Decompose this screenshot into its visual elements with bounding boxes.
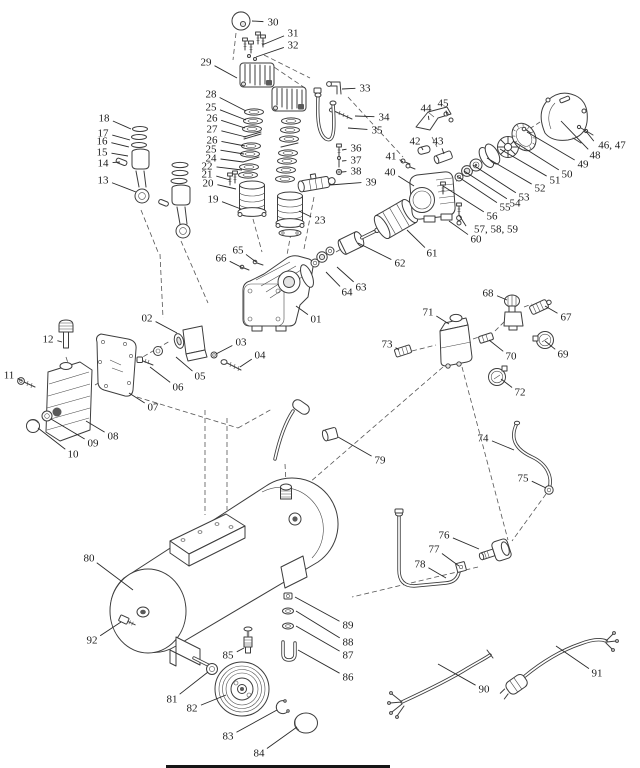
fitting-bolt-set (336, 144, 341, 175)
cylinder-head-front (240, 63, 274, 87)
leader-line (358, 243, 391, 260)
stator (410, 172, 456, 222)
part-number-label: 63 (356, 282, 368, 294)
leader-line (230, 261, 243, 268)
part-number-label: 19 (208, 194, 220, 206)
part-number-label: 41 (386, 151, 397, 163)
discharge-elbow (327, 82, 341, 94)
discharge-tube (314, 88, 336, 140)
part-number-label: 31 (288, 28, 299, 40)
leader-line (156, 322, 177, 333)
part-number-label: 75 (518, 473, 530, 485)
leader-line (217, 167, 242, 170)
part-number-label: 72 (515, 387, 526, 399)
hub-cap (295, 713, 318, 733)
part-number-label: 03 (236, 337, 248, 349)
leader-line (473, 165, 516, 193)
check-valve-manifold (297, 171, 337, 193)
part-number-label: 18 (99, 113, 111, 125)
part-number-label: 87 (343, 650, 355, 662)
leader-line (355, 116, 374, 117)
leader-line (299, 211, 311, 217)
leader-line (237, 648, 244, 652)
part-number-label: 68 (483, 288, 495, 300)
part-number-label: 32 (288, 40, 299, 52)
leader-line (220, 150, 244, 154)
leader-line (112, 183, 136, 192)
part-number-label: 04 (255, 350, 267, 362)
part-number-label: 70 (506, 351, 518, 363)
part-number-label: 40 (385, 167, 397, 179)
power-cord-bare (388, 650, 493, 718)
part-number-label: 29 (201, 57, 213, 69)
part-number-label: 56 (487, 211, 499, 223)
leader-line (585, 130, 594, 141)
part-number-label: 28 (206, 89, 218, 101)
piston-rear-assembly (158, 162, 190, 238)
crankcase (243, 256, 316, 331)
part-number-label: 05 (195, 371, 207, 383)
plug-fitting (529, 297, 553, 315)
leader-line (113, 162, 120, 163)
drain-valve-stem (244, 627, 252, 653)
leader-line (407, 230, 425, 248)
leader-line (111, 143, 129, 147)
leader-line (112, 135, 130, 140)
part-number-label: 20 (203, 178, 215, 190)
part-number-label: 89 (343, 620, 355, 632)
valve-plate-stack-rear (276, 118, 301, 182)
leader-line (113, 121, 131, 129)
bearing-bracket (173, 326, 207, 361)
part-number-label: 78 (415, 559, 427, 571)
part-number-label: 83 (223, 731, 235, 743)
part-number-label: 33 (360, 83, 372, 95)
part-number-label: 85 (223, 650, 235, 662)
part-number-label: 02 (142, 313, 153, 325)
air-filter (232, 12, 250, 30)
part-number-label: 06 (173, 382, 185, 394)
part-number-label: 54 (510, 198, 522, 210)
part-number-label: 92 (87, 635, 98, 647)
part-labels-layer: 3031322933343528252627262524222120192336… (4, 17, 627, 760)
leader-line (453, 538, 479, 549)
part-number-label: 65 (233, 245, 245, 257)
leader-line (487, 158, 532, 184)
valve-plate-stack-front (239, 109, 264, 178)
part-number-label: 48 (590, 150, 602, 162)
part-number-label: 50 (562, 169, 574, 181)
leader-line (221, 120, 245, 128)
cylinder-head-rear (272, 87, 306, 111)
part-number-label: 60 (471, 234, 483, 246)
leader-line (348, 128, 367, 129)
crankcase-cover (46, 362, 92, 441)
tank-handle (275, 398, 311, 459)
power-cord-with-plug (497, 632, 618, 701)
part-number-label: 14 (98, 158, 110, 170)
part-number-label: 01 (311, 314, 322, 326)
head-bolts (243, 32, 266, 61)
part-number-label: 55 (500, 202, 512, 214)
part-number-label: 23 (315, 215, 327, 227)
leader-line (556, 646, 589, 669)
part-number-label: 34 (379, 112, 391, 124)
piston-front-assembly (116, 127, 149, 204)
shaft-bearing-set (311, 247, 334, 267)
leader-line (267, 727, 297, 748)
retaining-ring (276, 700, 289, 714)
part-number-label: 69 (558, 349, 570, 361)
leader-line (216, 345, 232, 354)
part-number-label: 44 (421, 103, 433, 115)
part-number-label: 80 (84, 553, 96, 565)
part-number-label: 81 (167, 694, 178, 706)
part-number-label: 52 (535, 183, 546, 195)
part-number-label: 82 (187, 703, 198, 715)
part-number-label: 36 (351, 143, 363, 155)
crankcase-screws (240, 260, 263, 270)
part-number-label: 08 (108, 431, 120, 443)
cylinder-front (238, 181, 266, 217)
leader-line (442, 553, 459, 566)
leader-line (342, 149, 346, 150)
tank-port-fittings (283, 593, 296, 660)
leader-line (222, 202, 241, 209)
part-number-label: 38 (351, 166, 363, 178)
part-number-label: 64 (342, 287, 354, 299)
axle-washer (207, 664, 218, 675)
leader-line (545, 306, 557, 313)
gauge-front (489, 366, 508, 386)
leader-line (326, 272, 340, 286)
leader-line (216, 176, 230, 180)
crankshaft (336, 222, 382, 256)
leader-line (221, 159, 243, 162)
cylinder-rear (276, 192, 304, 236)
leader-line (296, 626, 340, 651)
leader-line (220, 97, 246, 111)
tank-plug (321, 427, 338, 441)
leader-line (298, 650, 340, 673)
motor-end-cover (541, 93, 587, 143)
leader-line (296, 611, 340, 638)
leader-line (150, 367, 170, 382)
switch-fitting (394, 345, 412, 358)
part-number-label: 86 (343, 672, 355, 684)
part-number-label: 73 (382, 339, 394, 351)
pressure-switch (440, 314, 472, 368)
part-number-label: 61 (427, 248, 438, 260)
part-number-label: 76 (439, 530, 451, 542)
leader-line (492, 441, 514, 450)
part-number-label: 88 (343, 637, 355, 649)
part-number-label: 09 (88, 438, 100, 450)
leader-line (246, 254, 256, 262)
part-number-label: 71 (423, 307, 434, 319)
leader-line (215, 66, 237, 78)
part-number-label: 79 (375, 455, 387, 467)
air-compressor-exploded-parts-diagram: 3031322933343528252627262524222120192336… (0, 0, 640, 768)
part-number-label: 30 (268, 17, 280, 29)
part-number-label: 91 (592, 668, 603, 680)
cover-bolt (18, 378, 35, 388)
leader-line (500, 149, 547, 176)
drain-pipe-nut (455, 561, 466, 572)
part-number-label: 51 (550, 175, 561, 187)
leader-line (221, 131, 246, 137)
part-number-label: 66 (216, 253, 228, 265)
part-number-label: 13 (98, 175, 110, 187)
part-number-label: 90 (479, 684, 491, 696)
leader-line (180, 672, 208, 694)
part-number-label: 62 (395, 258, 406, 270)
leader-line (342, 88, 355, 89)
leader-line (220, 110, 246, 120)
part-number-label: 45 (438, 98, 450, 110)
part-number-label: 10 (68, 449, 80, 461)
leader-line (129, 393, 145, 403)
leader-line (252, 21, 263, 22)
part-number-label: 43 (433, 136, 445, 148)
part-number-label: 35 (372, 125, 384, 137)
diagram-canvas: 3031322933343528252627262524222120192336… (0, 0, 640, 768)
leader-line (532, 481, 546, 488)
part-number-label: 46, 47 (598, 140, 626, 152)
leader-line (111, 153, 128, 156)
part-number-label: 84 (254, 748, 266, 760)
part-number-label: 42 (410, 136, 421, 148)
part-number-label: 77 (429, 544, 441, 556)
leader-line (295, 597, 340, 621)
leader-line (57, 341, 62, 342)
part-number-label: 49 (578, 159, 590, 171)
part-number-label: 12 (43, 334, 54, 346)
leader-line (489, 340, 503, 351)
part-number-label: 39 (366, 177, 378, 189)
leader-line (513, 141, 559, 170)
cylinder-bolts (228, 171, 238, 185)
cover-gasket (97, 334, 137, 396)
wheel (215, 662, 269, 716)
check-valve (477, 538, 513, 567)
part-number-label: 74 (478, 433, 490, 445)
small-capacitors (401, 145, 453, 169)
leader-line (240, 359, 252, 367)
part-number-label: 67 (561, 312, 573, 324)
leader-line (217, 185, 236, 189)
leader-line (256, 47, 284, 57)
leader-line (221, 141, 245, 146)
leader-line (436, 316, 449, 324)
oil-breather (59, 320, 73, 348)
leader-line (337, 267, 354, 282)
part-number-label: 07 (148, 402, 160, 414)
part-number-label: 11 (4, 370, 15, 382)
